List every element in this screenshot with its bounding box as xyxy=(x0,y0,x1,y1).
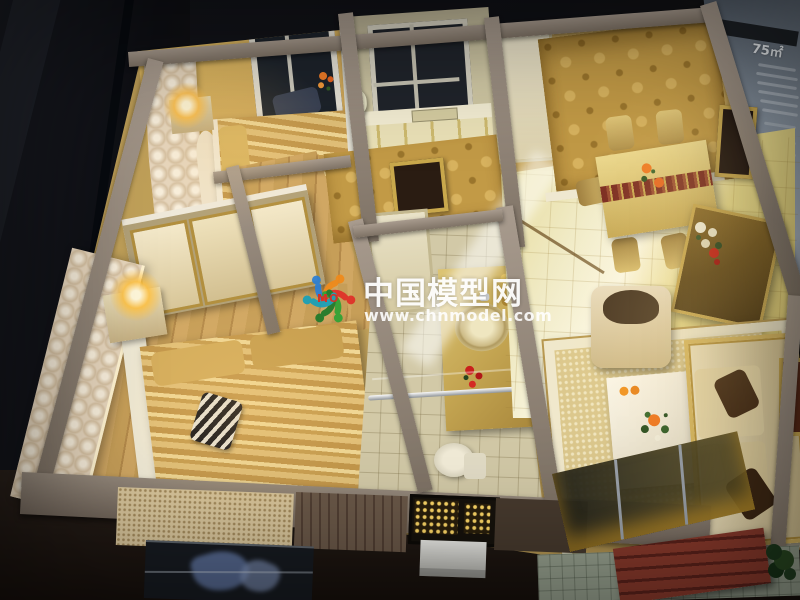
striped-pillow xyxy=(189,391,244,451)
toilet-tank xyxy=(464,453,486,479)
balcony xyxy=(538,468,800,600)
nightstand xyxy=(169,96,214,134)
window-pane-lit xyxy=(413,499,458,535)
flower-centerpiece xyxy=(641,163,652,174)
lower-glass-window xyxy=(144,540,314,600)
glass-door-frame xyxy=(614,460,624,540)
red-rose xyxy=(709,248,719,258)
flower-arrangement xyxy=(648,414,661,427)
master-nightstand xyxy=(103,287,168,343)
fruit-bowl xyxy=(619,386,629,396)
showroom-photo: 75㎡ xyxy=(0,0,800,600)
watermark: MO 中国模型网 www.chnmodel.com xyxy=(300,262,540,334)
lily-flowers xyxy=(695,222,706,233)
exterior-slat-panel xyxy=(294,492,408,552)
dining-chair xyxy=(605,114,635,151)
table-runner xyxy=(600,169,713,202)
watermark-site-url: www.chnmodel.com xyxy=(364,306,552,325)
window-pane-lit xyxy=(464,503,491,534)
armchair-cushion xyxy=(603,290,659,324)
ac-unit xyxy=(419,540,486,578)
window-frame-line xyxy=(145,571,313,574)
bed-pillow xyxy=(150,339,246,387)
balcony-plant xyxy=(766,544,782,560)
hall-art-frame xyxy=(389,157,448,216)
dining-chair xyxy=(655,109,684,146)
glass-door-frame xyxy=(678,445,688,525)
logo-mo-text: MO xyxy=(317,292,339,305)
dining-chair xyxy=(611,236,641,273)
armchair xyxy=(591,286,671,368)
